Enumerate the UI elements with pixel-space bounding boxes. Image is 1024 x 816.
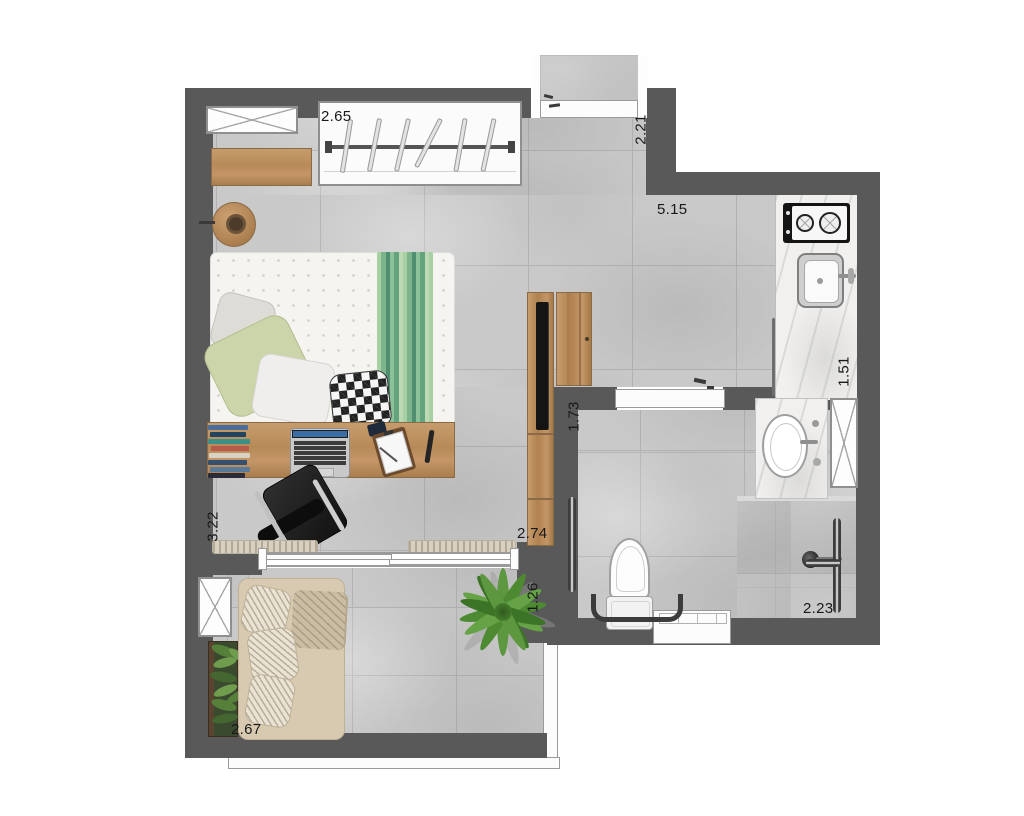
kitchen-sink bbox=[797, 253, 844, 308]
dim-entry-depth: 2.21 bbox=[634, 114, 649, 144]
bathroom-window bbox=[830, 398, 858, 488]
bathroom-sink bbox=[762, 414, 808, 478]
burner-large bbox=[819, 212, 841, 234]
dim-hall-width: 2.74 bbox=[517, 526, 547, 541]
balcony-window bbox=[198, 577, 232, 637]
sliding-door-panel bbox=[264, 554, 392, 560]
sofa-blanket bbox=[291, 590, 349, 651]
wardrobe-rail bbox=[330, 145, 510, 149]
table-lamp-icon bbox=[226, 214, 246, 234]
hanger-icon bbox=[414, 118, 443, 168]
entry-jamb-right bbox=[638, 55, 647, 118]
kitchen-faucet-base bbox=[848, 268, 854, 284]
laptop-screen bbox=[292, 430, 348, 438]
wall-right bbox=[856, 172, 880, 645]
bedroom-shaft bbox=[206, 106, 298, 134]
bathroom-door-hinge bbox=[707, 386, 714, 389]
entry-door-threshold bbox=[540, 100, 638, 118]
wall-sconce-arm bbox=[199, 221, 215, 224]
dim-balcony-depth: 1.26 bbox=[526, 582, 541, 612]
tv-icon bbox=[536, 302, 549, 430]
bathroom-faucet bbox=[800, 440, 818, 444]
side-table bbox=[212, 202, 256, 247]
wardrobe-rail-cap bbox=[508, 141, 515, 153]
toilet-bowl bbox=[609, 538, 650, 600]
wall-top-kitchen bbox=[646, 172, 880, 195]
dim-bathroom-width: 1.73 bbox=[567, 401, 582, 431]
storage-cabinet bbox=[556, 292, 592, 386]
cooktop-knob bbox=[786, 211, 790, 215]
bed-pillow-white bbox=[250, 352, 337, 428]
dim-balcony-width: 2.67 bbox=[231, 722, 261, 737]
floor-entry-vestibule bbox=[540, 55, 638, 105]
cooktop bbox=[783, 203, 850, 243]
dim-bedroom-depth: 3.22 bbox=[206, 511, 221, 541]
balcony-rail-bottom bbox=[228, 757, 560, 769]
entry-jamb-left bbox=[531, 55, 540, 118]
wardrobe-rail-cap bbox=[325, 141, 332, 153]
grab-bar-shower-horizontal bbox=[806, 559, 840, 567]
wall-bathroom-top-left bbox=[578, 387, 617, 410]
floor-plan: 2.65 2.21 5.15 1.51 1.73 2.74 3.22 1.26 … bbox=[0, 0, 1024, 816]
kitchen-counter-edge bbox=[772, 318, 775, 396]
soap-dish bbox=[813, 458, 821, 466]
toilet-grab-bar bbox=[591, 594, 683, 622]
dim-shower-width: 2.23 bbox=[803, 601, 833, 616]
wardrobe-shelf-line bbox=[324, 171, 516, 172]
plant-center bbox=[494, 603, 512, 621]
burner-small bbox=[796, 214, 814, 232]
cooktop-knob bbox=[786, 230, 790, 234]
dim-wardrobe-width: 2.65 bbox=[321, 109, 351, 124]
cabinet-handle bbox=[585, 337, 589, 341]
grab-bar-left-wall bbox=[568, 497, 576, 592]
sliding-door-jamb bbox=[258, 548, 267, 570]
bathroom-door-threshold bbox=[615, 389, 725, 408]
kitchen-sink-drain bbox=[817, 278, 823, 284]
dim-kitchen-counter-length: 1.51 bbox=[837, 356, 852, 386]
soap-dispenser bbox=[812, 420, 819, 427]
wall-shelf bbox=[211, 148, 312, 186]
dim-living-length: 5.15 bbox=[657, 202, 687, 217]
